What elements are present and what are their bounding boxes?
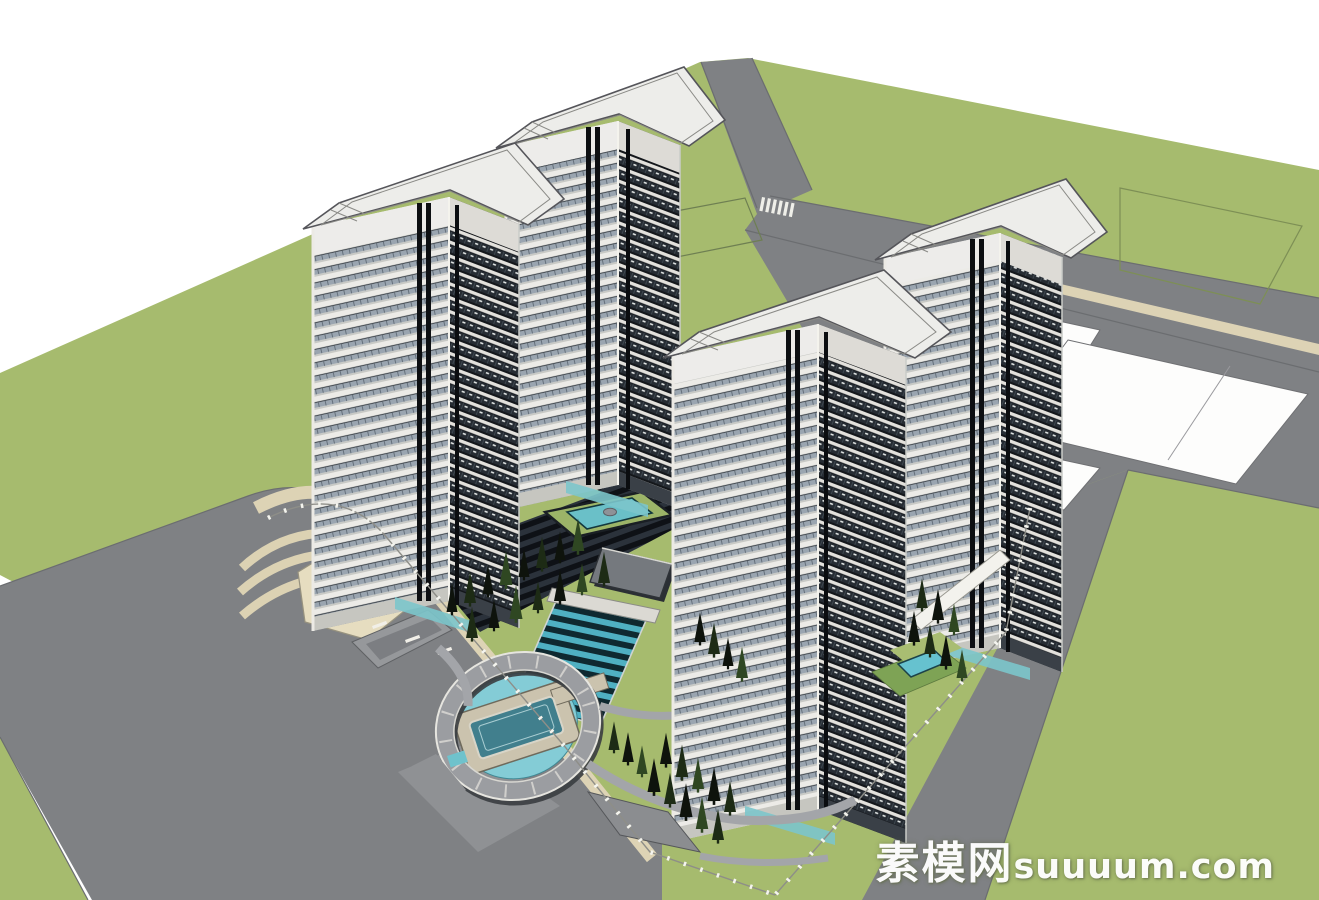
watermark: 素模网suuuum.com bbox=[875, 842, 1275, 886]
site-render bbox=[0, 0, 1319, 900]
watermark-site-url: suuuum.com bbox=[1013, 847, 1275, 887]
watermark-site-name: 素模网 bbox=[875, 838, 1013, 889]
pool-sculpture bbox=[604, 508, 617, 516]
render-canvas: 素模网suuuum.com bbox=[0, 0, 1319, 900]
